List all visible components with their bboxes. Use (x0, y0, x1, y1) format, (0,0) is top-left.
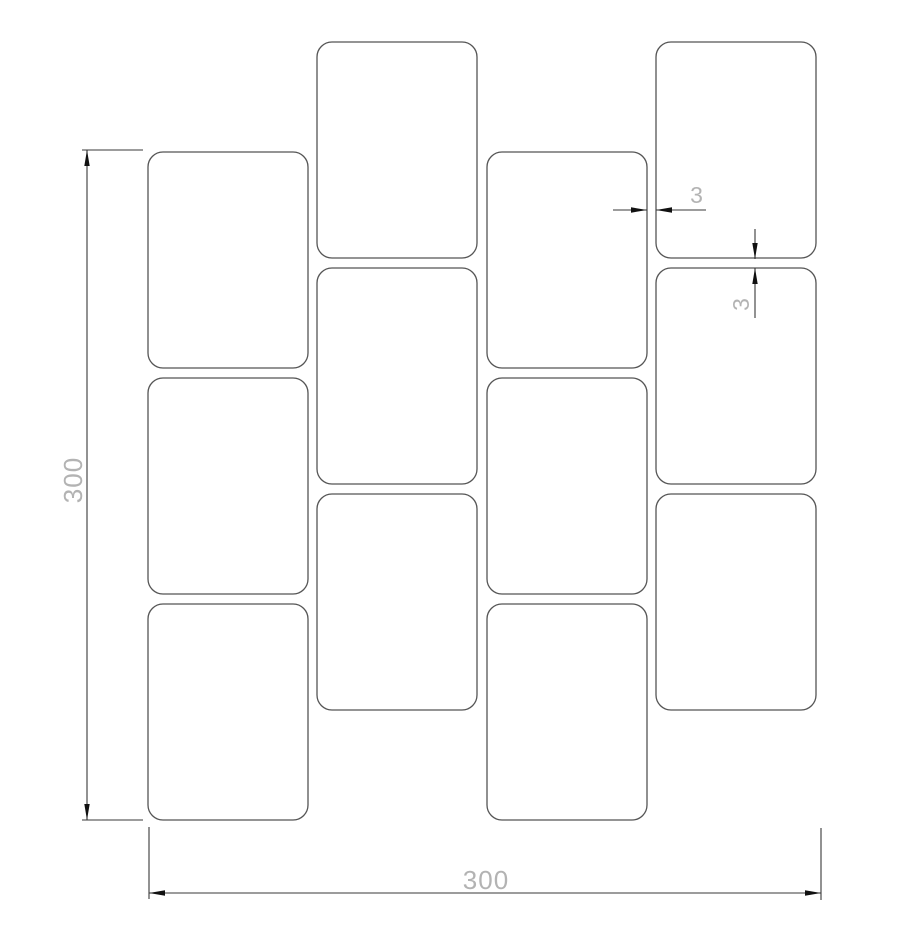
dimension-label-overall-width: 300 (463, 865, 509, 895)
tile-rect-1 (148, 378, 308, 594)
tile-rect-4 (317, 268, 477, 484)
drawing-page: 30030033 (0, 0, 900, 930)
tile-rect-5 (317, 494, 477, 710)
tile-rect-6 (487, 152, 647, 368)
tile-rect-2 (148, 604, 308, 820)
dimension-label-joint-gap-horizontal: 3 (690, 182, 704, 208)
tile-rect-9 (656, 42, 816, 258)
tile-rect-0 (148, 152, 308, 368)
cad-drawing: 30030033 (0, 0, 900, 930)
tile-rect-3 (317, 42, 477, 258)
tile-rect-7 (487, 378, 647, 594)
dimension-label-joint-gap-vertical: 3 (728, 297, 754, 311)
dimension-label-overall-height: 300 (58, 457, 88, 503)
tile-rect-8 (487, 604, 647, 820)
tile-rect-11 (656, 494, 816, 710)
